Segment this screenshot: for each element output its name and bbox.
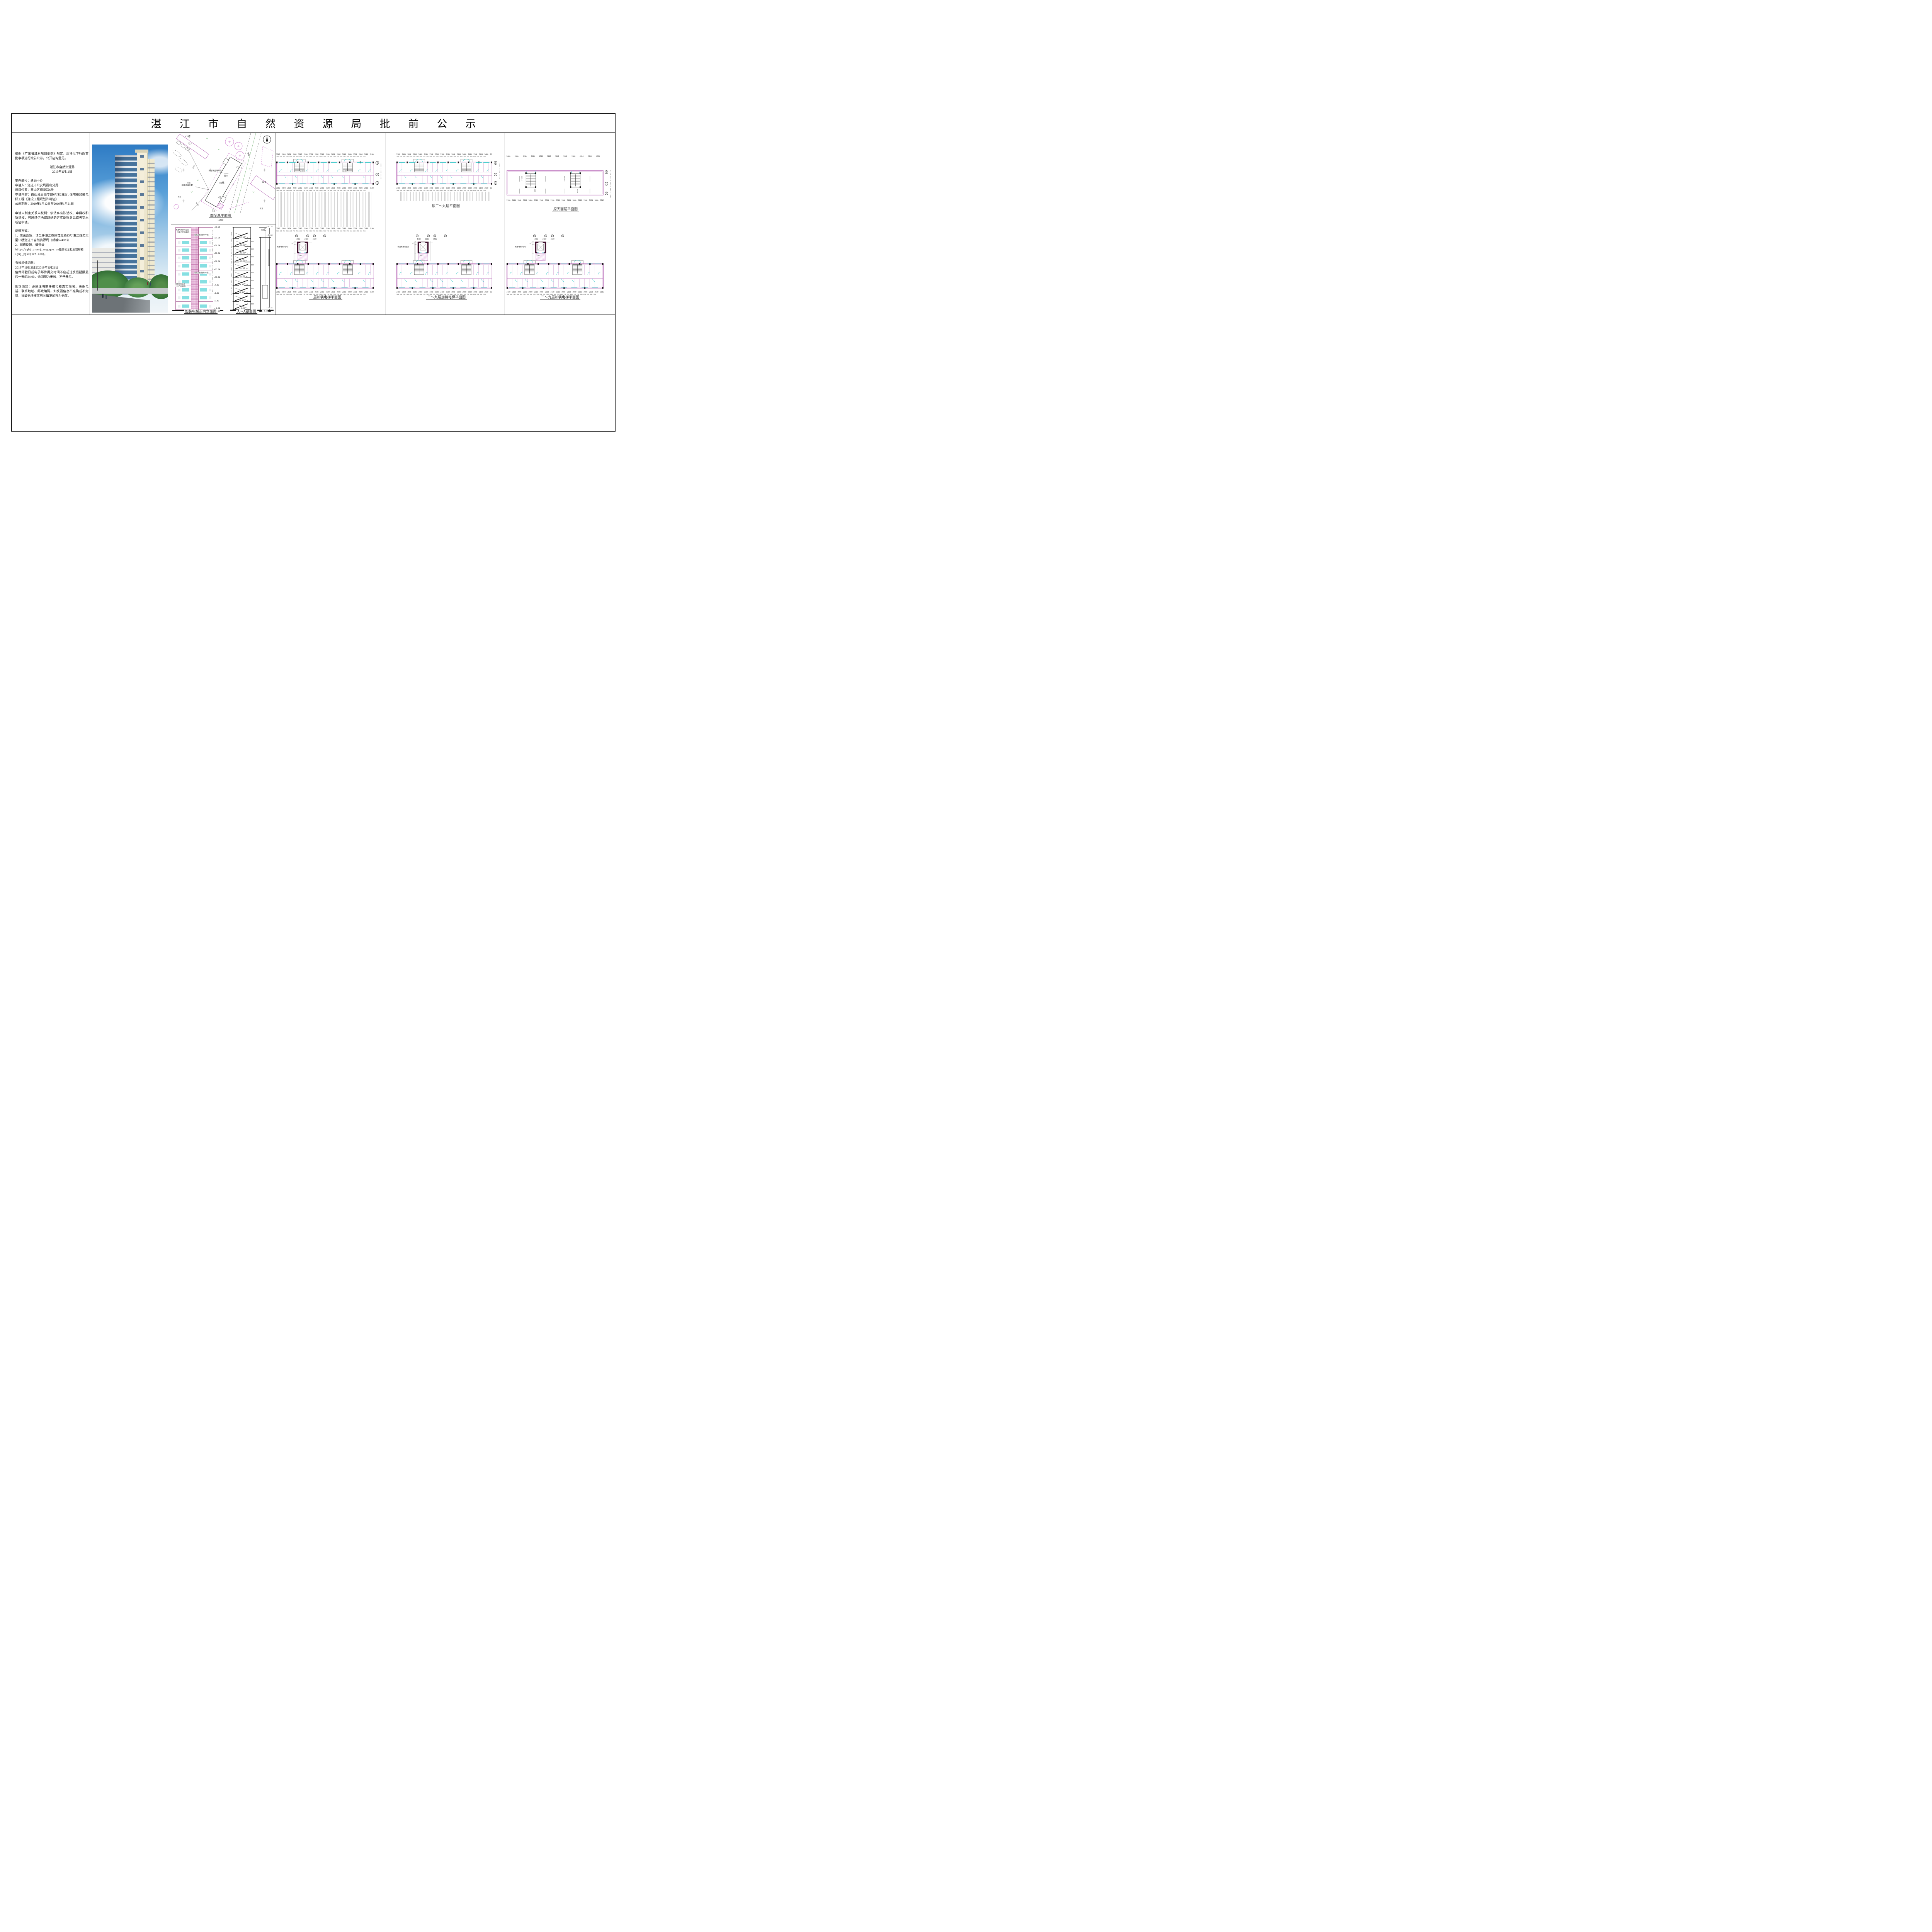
grid-bubble-7: 7 [416, 235, 418, 237]
extension-lines [279, 192, 372, 227]
site-plan-drawing: C2栋 砼 9 砼 9 E2栋 8 砼 8 1门 2门 水泥 水泥 水泥 水泥 … [172, 133, 275, 213]
dim-row: 700 600 700 700 600 700 750 600 750 750 … [276, 156, 374, 158]
window-row [175, 241, 213, 244]
label-cement: 水泥 [187, 182, 190, 184]
elevator-shaft-detail [411, 240, 435, 262]
label-tong9: 砼 9 [189, 142, 192, 145]
md-label: MD [251, 303, 254, 305]
pedestrian [105, 295, 107, 299]
divider [386, 132, 386, 315]
notice-notes: 反馈须知：必须注明案件编号和真实姓名、联系电话、联系地址、邮政编码，如反馈信息不… [15, 284, 88, 298]
notice-rights: 申请人利害关系人权利：依法享有陈述权、申辩权和听证权，可通过信函或网络的方式反馈… [15, 211, 88, 225]
md-label: MD [299, 255, 302, 257]
feedback-1: 1、信函反馈，请至件湛江市体育北路15号湛江商务大厦10楼湛江市自然资源局（邮编… [15, 233, 88, 243]
label-cement: 水泥 [260, 207, 263, 210]
label-elevator-location: 拟建电梯位置 [182, 184, 193, 187]
grid-bubble-8: 8 [306, 235, 309, 237]
level-label: 27.00 [239, 236, 245, 239]
pedestrian [147, 282, 148, 285]
callout: (贴灰蓝色纸皮砖400宽) [194, 234, 209, 236]
notice-content: 申请内容：霞山分局绿华路6号E2栋2门住宅楼加装电梯工程《建设工程规划许可证》 [15, 192, 88, 202]
callout: 宿舍部分立面 [175, 283, 185, 285]
level-label: 18.00 [239, 260, 245, 262]
md-label: MD [420, 255, 422, 257]
plan-caption: 原天面层平面图 [552, 207, 579, 211]
notice-applicant: 申请人：湛江市公安局霞山分局 [15, 183, 88, 188]
tree [149, 274, 168, 299]
floor-plan-2-9-with-elevator [507, 260, 604, 290]
page-title: 湛江市自然资源局批前公示 [133, 116, 494, 131]
label-8: 8 [233, 184, 234, 186]
grid-bubble-e: E [605, 192, 608, 195]
md-label: MD [251, 279, 254, 281]
md-label: MD [251, 295, 254, 297]
shaft-label: 新加电梯间部分 [277, 246, 288, 248]
slope-label: i=1.5% [521, 176, 523, 180]
label-door2: 2门 [218, 196, 221, 199]
level-label: 15.00 [214, 269, 220, 271]
callout: (贴灰蓝色纸皮砖300宽) [194, 272, 209, 274]
level-label: 9.00 [239, 284, 244, 286]
floor-plan-original-first [276, 159, 374, 186]
grid-bubble-g: G [494, 173, 497, 176]
dim-row: 2100 2000 2000 2000 2000 2100 2100 2600 … [507, 199, 604, 202]
title-bar: 湛江市自然资源局批前公示 [12, 114, 615, 133]
valid-period: 2019年1月12日至2019年1月21日 [15, 265, 88, 270]
level-label: 28.60 [267, 234, 272, 236]
elevator-shaft-detail [290, 240, 315, 262]
level-zero-mark: ±0.00 [300, 170, 304, 172]
notice-period: 公示期限：2019年1月12日至2019年1月21日 [15, 202, 88, 206]
md-label: MD [251, 287, 254, 289]
grid-bubble-j: J [605, 170, 608, 174]
grid-bubble-j: J [376, 161, 379, 165]
grid-bubble-g: G [605, 182, 608, 185]
dim-row: 700 600 700 700 600 700 750 600 750 750 … [276, 230, 374, 232]
label-cement: 水泥 [212, 210, 215, 213]
md-label: MD [251, 256, 254, 258]
elevation-caption: 加装电梯正向立面图 [184, 310, 218, 314]
dim-row: 700 600 700 700 600 700 750 600 750 750 … [396, 156, 492, 158]
floor-plan-first-with-elevator [276, 260, 374, 290]
level-label: 15.00 [239, 268, 245, 270]
level-label: 9.00 [214, 284, 219, 286]
sidewalk [92, 288, 168, 294]
elevation-drawing: 31.20 27.00 24.00 21.00 18.00 15.00 12.0… [175, 226, 223, 312]
grid-bubble-e: E [494, 181, 497, 185]
level-label: -1.80 [262, 310, 268, 312]
window-row [175, 296, 213, 299]
level-label: -0.45 [267, 307, 272, 309]
side-dims: 3900 1800 4800 [380, 163, 382, 184]
section-drawing: 机房 MD MD MD MD MD MD MD MD MD 27.00 24.0… [230, 226, 274, 312]
divider [171, 132, 171, 315]
tree [124, 277, 151, 298]
divider [90, 132, 90, 315]
section-linework [230, 226, 274, 312]
plan-caption: 一层加装电梯平面图 [309, 295, 342, 299]
level-zero-mark: ±0.00 [343, 170, 347, 172]
north-arrow-icon [263, 136, 271, 143]
level-label: 18.00 [214, 260, 220, 263]
extension-lines [399, 192, 490, 201]
shaft-label: 新加电梯间部分 [515, 246, 526, 248]
notice-case-no: 案件编号：建18-440 [15, 179, 88, 183]
pedestrian [102, 294, 104, 298]
floor-plan-original-2-9 [396, 159, 492, 186]
label-tong9: 砼 9 [224, 175, 228, 177]
feedback-2: 2、网络反馈，请登录 [15, 243, 88, 247]
slope-label: i=1.5% [577, 189, 579, 193]
level-label: 31.20 [267, 226, 272, 228]
grid-bubble-7: 7 [295, 235, 298, 237]
divider [276, 132, 276, 315]
floor-height-dims: 4200 3000 3000 3000 3000 3000 3000 3000 … [230, 232, 232, 308]
label-balcony: 阳台防盗网外飘 [209, 169, 222, 172]
notice-agency: 湛江市自然资源局 [39, 165, 85, 170]
plan-caption: 二～九层加装电梯平面图 [426, 295, 467, 299]
lamp-post [97, 260, 98, 291]
dim-row: 2000 2000 4200 2600 4200 2000 2000 2000 … [507, 155, 604, 158]
callout: （贴奶白色纸皮砖） [176, 231, 190, 233]
pedestrian [150, 282, 151, 286]
level-label: 6.00 [239, 291, 244, 294]
site-plan-caption: 四至总平面图 [209, 214, 232, 218]
label-c2: C2栋 [185, 135, 190, 138]
feedback-url: http://ghj.zhanjiang.gov.cn指前公示栏反馈邮箱 [15, 247, 88, 252]
grid-bubble-g: G [376, 173, 379, 176]
shaft-label: 新加电梯间部分 [398, 246, 409, 248]
grid-bubble-8: 8 [427, 235, 430, 237]
label-door1: 1门 [236, 166, 239, 169]
level-label: 6.00 [214, 292, 219, 294]
md-label: MD [537, 255, 540, 257]
level-label: 24.00 [239, 244, 245, 247]
window-row [175, 288, 213, 292]
slope-label: i=1.5% [534, 189, 536, 193]
dim-16-13: 16.13 [195, 202, 199, 206]
feedback-title: 反馈方式： [15, 229, 88, 233]
grid-bubble-10: 10 [434, 235, 436, 237]
level-label: 21.00 [239, 252, 245, 254]
valid-note: 信件邮戳日或电子邮件提交时间不应超过反馈期限最后一天的24:00，逾期视为无效，… [15, 270, 88, 279]
roof-plan-original [507, 168, 604, 197]
side-dims: 1500 3900 1800 4800 1500 [609, 170, 611, 196]
level-label: 24.00 [214, 245, 220, 247]
level-label: 12.00 [239, 276, 245, 278]
side-dims: 3900 1800 4800 [498, 163, 500, 184]
label-tong8: 砼 8 [262, 180, 266, 184]
md-label: MD [251, 264, 254, 266]
callout: 新加电梯部分立面 [176, 229, 189, 231]
md-label: MD [251, 272, 254, 274]
grid-bubble-10: 10 [313, 235, 316, 237]
grid-bubble-7: 7 [533, 235, 536, 237]
grid-bubble-10: 10 [551, 235, 554, 237]
label-cement: 水泥 [178, 196, 181, 198]
grid-bubble-8: 8 [544, 235, 547, 237]
machine-room-label: 机房 [261, 230, 265, 231]
md-label: MD [251, 240, 254, 242]
divider [505, 132, 505, 315]
level-label: 31.20 [214, 226, 220, 228]
window-row [175, 264, 213, 268]
notice-intro: 根据《广东省城乡规划条例》规定，现将以下行政审批事项进行批前公示，公开征询意见。 [15, 151, 88, 161]
grid-bubble-11: 11 [561, 235, 564, 237]
elevator-shaft-detail [528, 240, 553, 262]
section-caption: A～A剖面图 [236, 310, 257, 314]
site-plan-scale: 1:200 [218, 219, 223, 221]
feedback-email: (ghj_yjxx@126.com)。 [15, 252, 88, 257]
grid-bubble-j: J [494, 161, 497, 165]
window-row [175, 304, 213, 308]
tower-windows [140, 155, 144, 293]
floor-height-dims: 4200 3000 3000 3000 3000 3000 3000 3000 … [211, 230, 213, 308]
level-label: 21.00 [214, 252, 220, 255]
level-label: 3.00 [214, 300, 219, 302]
grid-bubble-e: E [376, 181, 379, 185]
callout: （白色外墙砖） [175, 285, 187, 287]
building-roof [135, 150, 148, 153]
md-label: MD [251, 248, 254, 250]
plan-caption: 二～九层加装电梯平面图 [540, 295, 580, 299]
site-plan-cell-border [171, 224, 276, 224]
notice-location: 项目位置：霞山区绿华路6号 [15, 188, 88, 192]
dim-25-80: 25.80 [192, 164, 195, 169]
grid-bubble-11: 11 [444, 235, 447, 237]
window-row [175, 256, 213, 260]
window-row [175, 248, 213, 252]
floor-plan-2-9-with-elevator [396, 260, 492, 290]
notice-sheet: 湛江市自然资源局批前公示 根据《广东省城乡规划条例》规定，现将以下行政审批事项进… [11, 113, 616, 432]
level-label: 12.00 [214, 276, 220, 279]
label-e2: E2栋 [219, 181, 224, 184]
notice-date: 2019年1月11日 [39, 170, 85, 174]
drawings-bottom-frame [12, 315, 615, 315]
level-label: 27.00 [214, 237, 220, 239]
building-rendering-photo [92, 145, 168, 313]
level-label: 3.00 [239, 299, 244, 302]
valid-title: 有效反馈期限： [15, 261, 88, 265]
grid-bubble-11: 11 [323, 235, 326, 237]
slope-label: i=1.5% [564, 176, 566, 180]
building-tower [137, 152, 148, 295]
plan-caption: 原二～九层平面图 [431, 204, 461, 208]
